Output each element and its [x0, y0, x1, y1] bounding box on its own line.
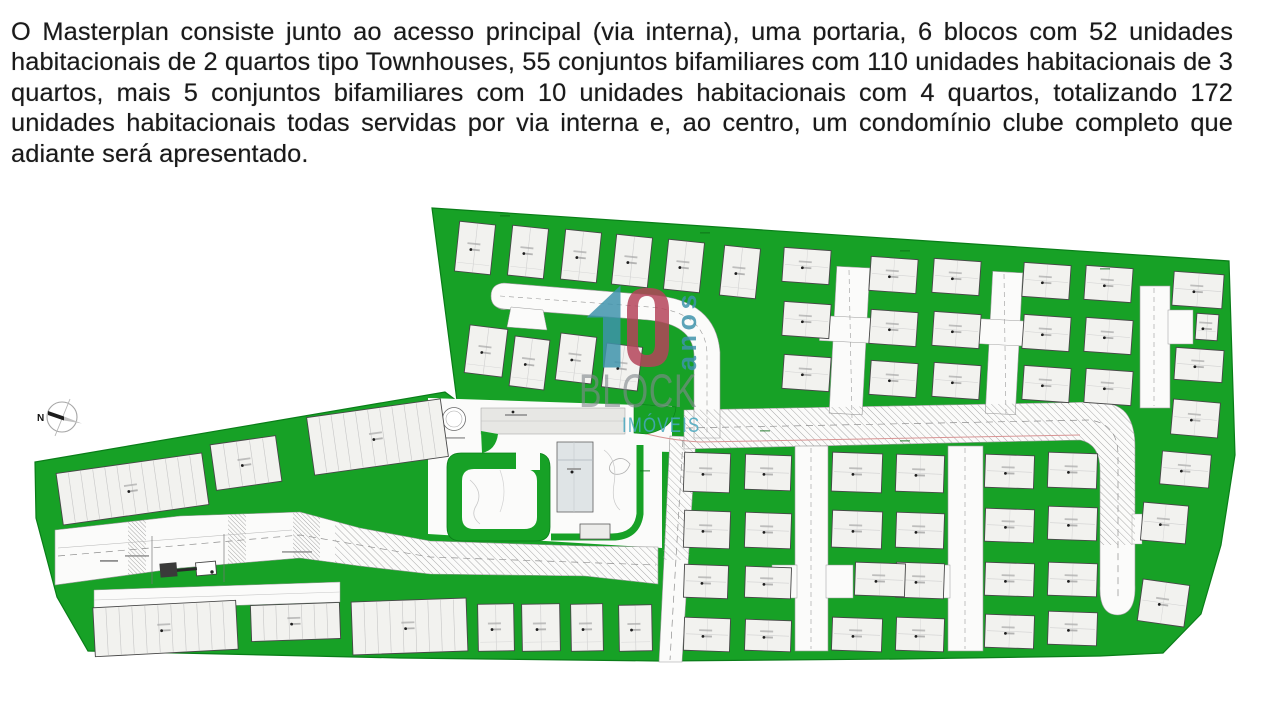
svg-text:IMÓVEIS: IMÓVEIS: [622, 413, 700, 437]
svg-text:anos: anos: [672, 290, 702, 371]
svg-text:BLOCK: BLOCK: [579, 365, 697, 418]
svg-text:N: N: [37, 413, 44, 424]
